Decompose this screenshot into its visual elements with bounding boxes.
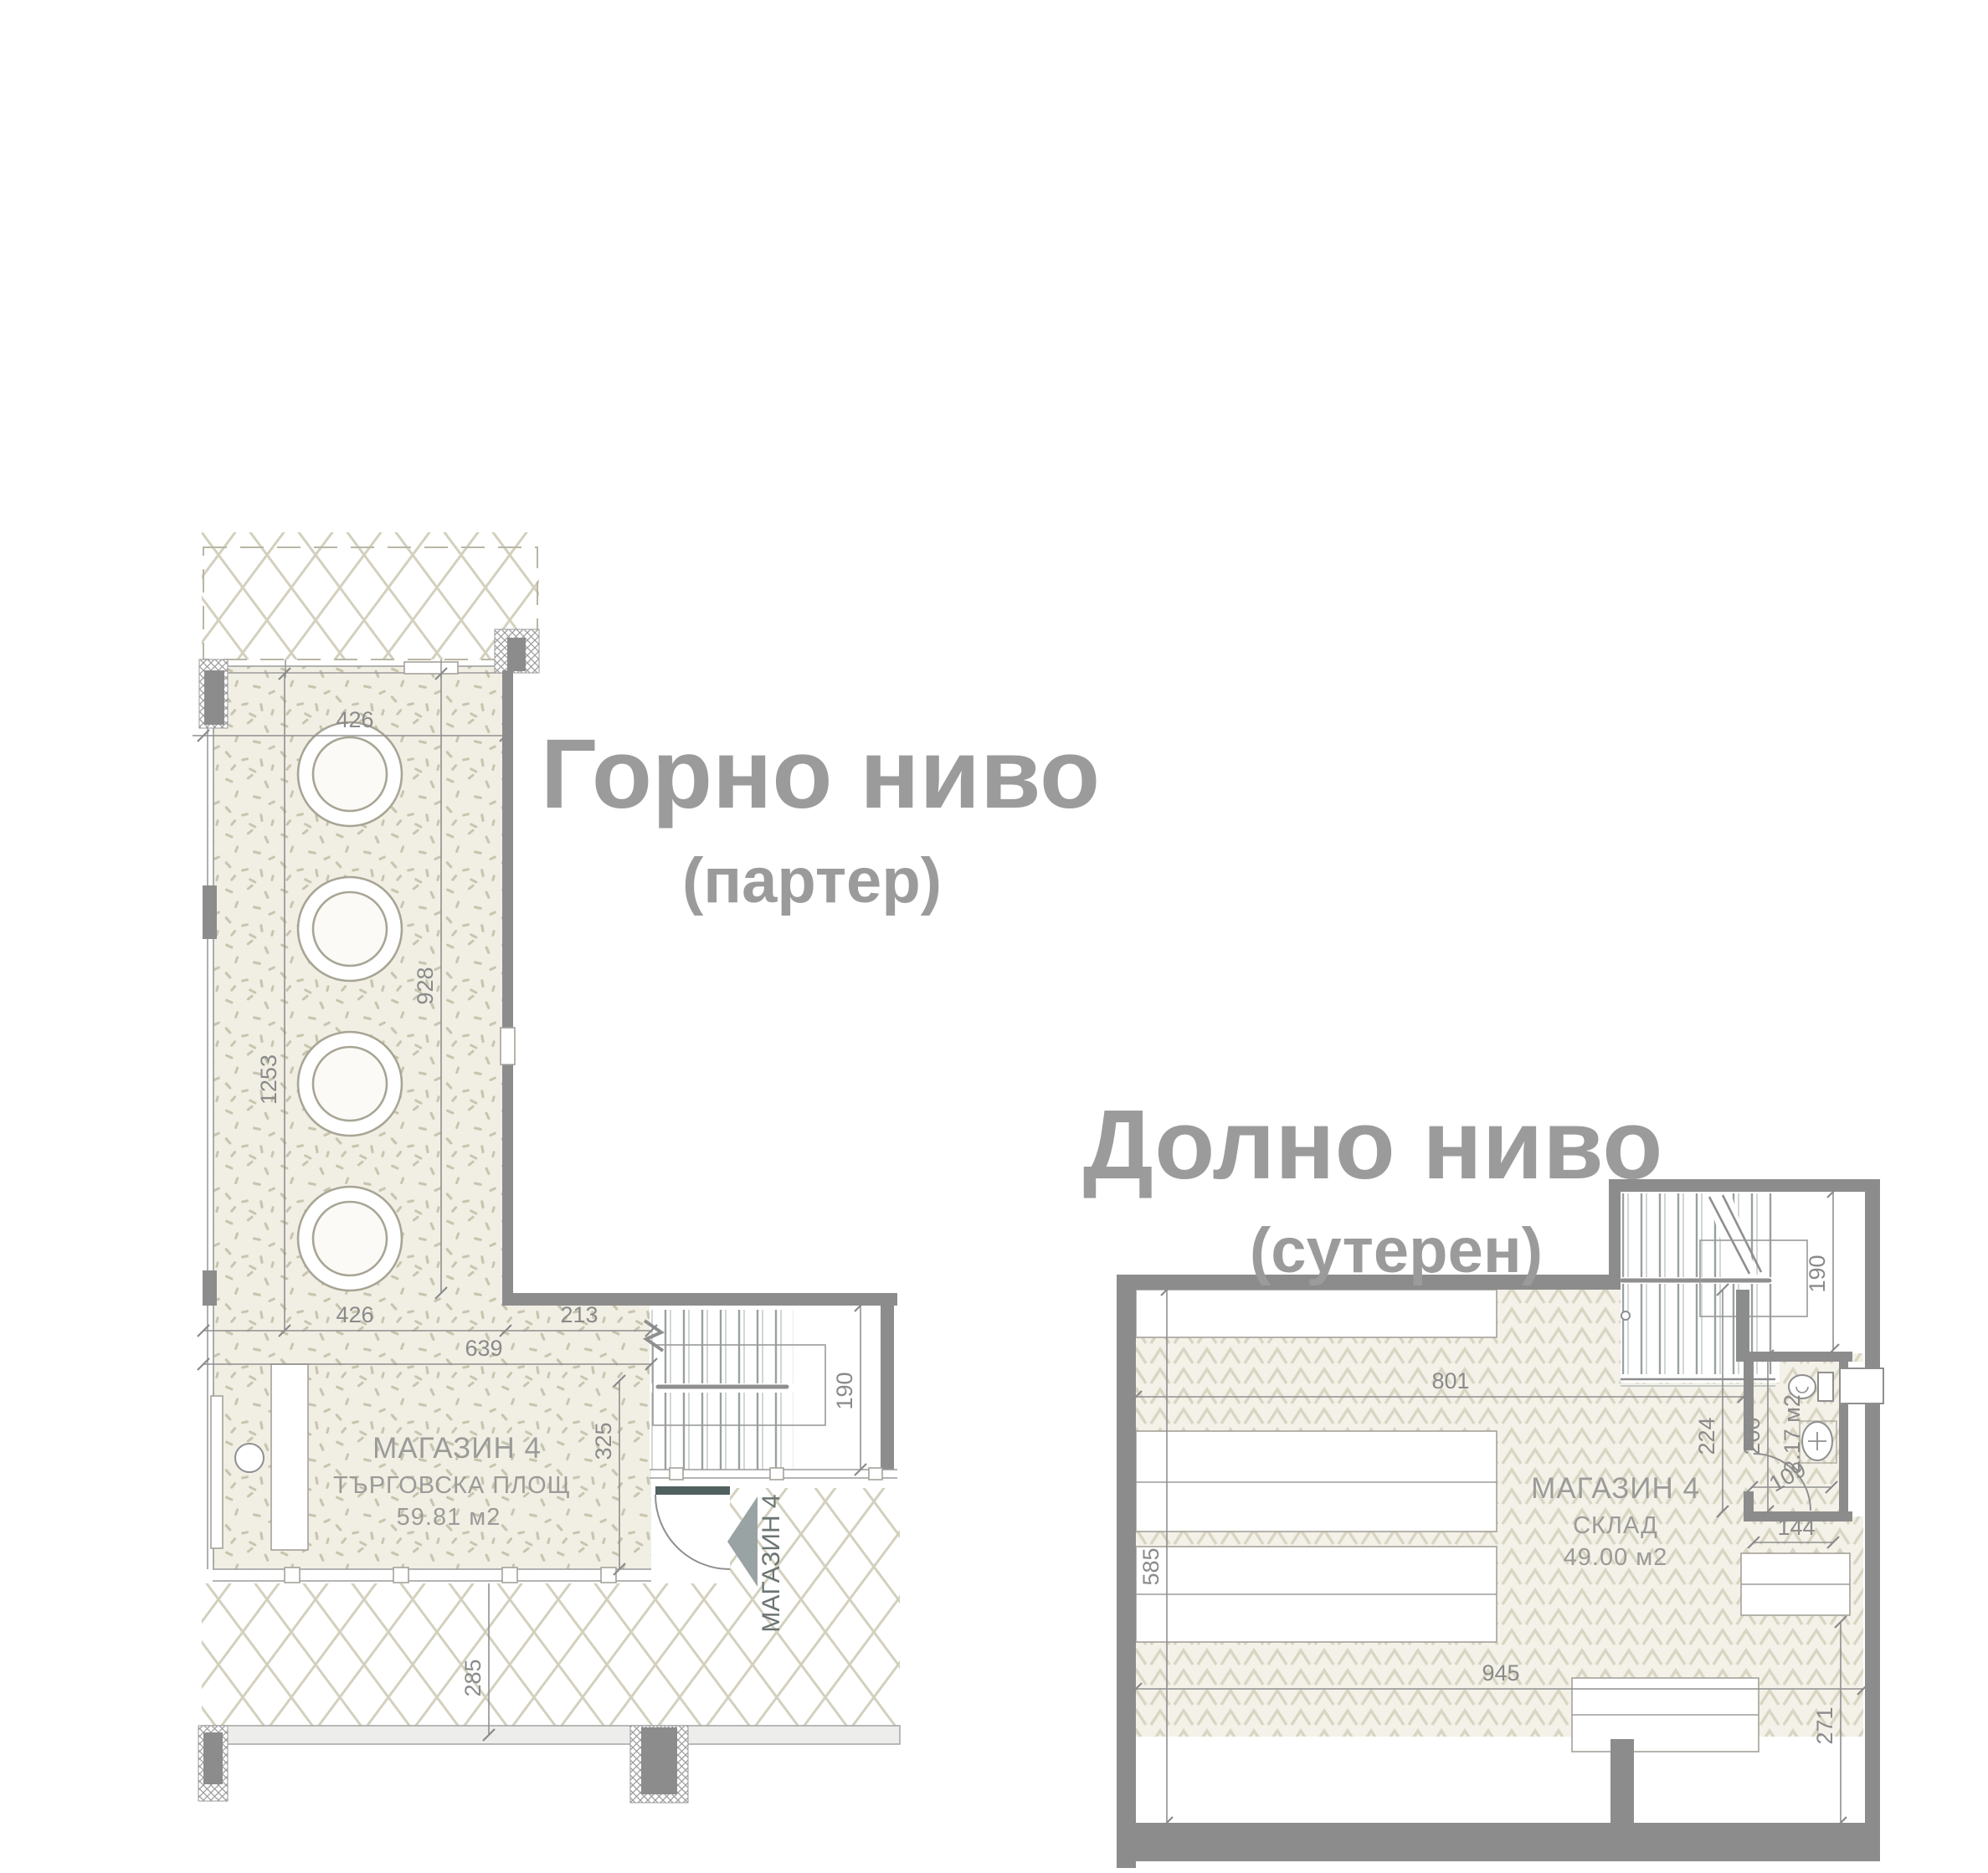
wall-niche	[1840, 1368, 1883, 1403]
lower-room-type: СКЛАД	[1573, 1512, 1658, 1539]
upper-pavement-top-hatch	[202, 532, 539, 659]
lower-plan: МАГАЗИН 4 СКЛАД 49.00 м2 2.17 м2 801 585…	[1083, 1090, 1883, 1868]
upper-room-name: МАГАЗИН 4	[372, 1432, 542, 1465]
shop-counter	[271, 1364, 308, 1550]
bottom-wall-stub	[1610, 1739, 1634, 1823]
svg-text:639: 639	[465, 1336, 502, 1361]
svg-text:271: 271	[1812, 1706, 1837, 1744]
lower-subtitle: (сутерен)	[1250, 1215, 1543, 1286]
upper-room-area: 59.81 м2	[397, 1504, 501, 1531]
lower-room-name: МАГАЗИН 4	[1531, 1472, 1700, 1505]
upper-staircase	[645, 1306, 897, 1480]
svg-text:585: 585	[1138, 1547, 1164, 1585]
floorplan-sheet: МАГАЗИН 4 МАГАЗИН 4 ТЪРГОВСКА ПЛОЩ 59.81…	[0, 0, 1988, 1873]
svg-text:190: 190	[832, 1372, 857, 1409]
upper-room-type: ТЪРГОВСКА ПЛОЩ	[333, 1472, 571, 1499]
svg-text:426: 426	[336, 1302, 373, 1327]
shop-column	[235, 1444, 264, 1472]
svg-text:144: 144	[1777, 1515, 1815, 1540]
svg-text:928: 928	[413, 967, 438, 1004]
svg-text:945: 945	[1482, 1660, 1519, 1686]
svg-text:801: 801	[1431, 1368, 1469, 1393]
sidewalk-band	[202, 1726, 900, 1744]
upper-storefront	[213, 1568, 651, 1583]
svg-text:200: 200	[1739, 1417, 1765, 1455]
upper-top-right-pier	[495, 629, 539, 673]
entrance-door	[655, 1486, 730, 1569]
svg-text:426: 426	[336, 707, 373, 732]
svg-text:190: 190	[1805, 1255, 1830, 1292]
upper-plan: МАГАЗИН 4 МАГАЗИН 4 ТЪРГОВСКА ПЛОЩ 59.81…	[193, 532, 1100, 1803]
floorplan-drawing: МАГАЗИН 4 МАГАЗИН 4 ТЪРГОВСКА ПЛОЩ 59.81…	[0, 0, 1988, 1873]
upper-subtitle: (партер)	[682, 845, 942, 916]
svg-text:213: 213	[560, 1302, 598, 1327]
upper-title: Горно ниво	[541, 719, 1100, 829]
door-leaf	[655, 1486, 730, 1495]
lower-room-area: 49.00 м2	[1564, 1544, 1668, 1571]
svg-text:285: 285	[460, 1659, 485, 1696]
svg-text:325: 325	[591, 1422, 616, 1460]
lower-title: Долно ниво	[1083, 1090, 1663, 1200]
entrance-label: МАГАЗИН 4	[758, 1494, 785, 1632]
svg-text:1253: 1253	[256, 1055, 281, 1105]
svg-text:224: 224	[1694, 1417, 1719, 1455]
